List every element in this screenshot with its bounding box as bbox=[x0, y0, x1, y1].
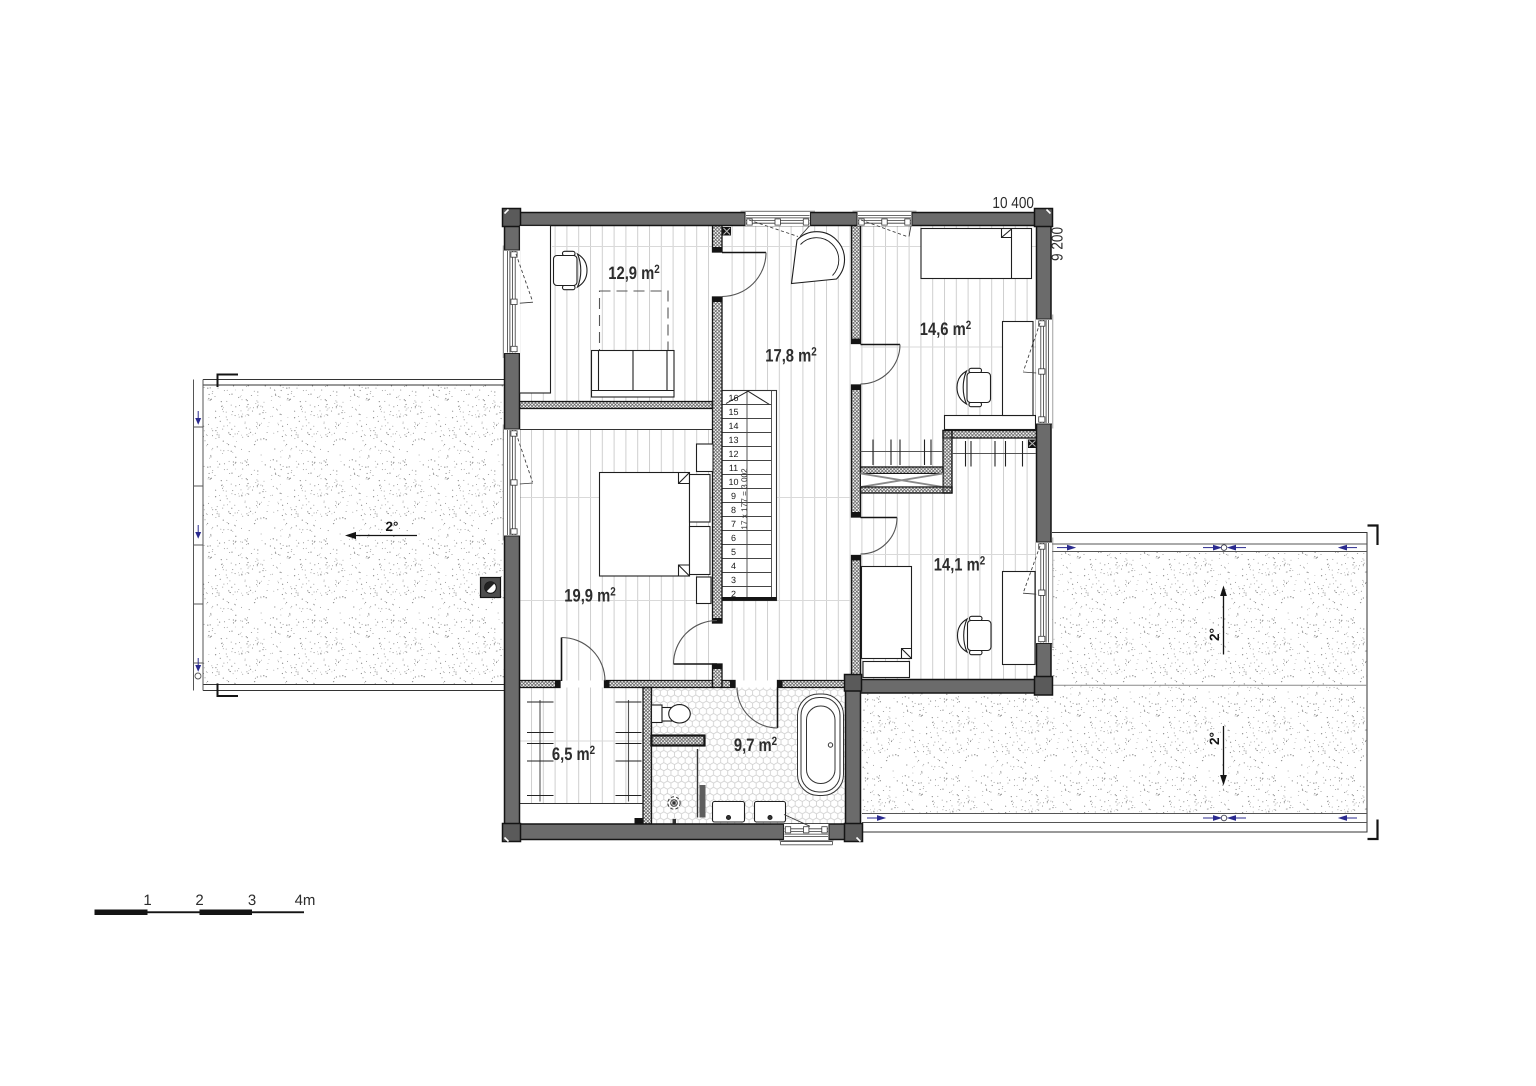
svg-text:9 200: 9 200 bbox=[1050, 227, 1067, 261]
svg-text:3: 3 bbox=[248, 892, 256, 909]
svg-text:12,9 m2: 12,9 m2 bbox=[608, 262, 660, 283]
svg-text:13: 13 bbox=[728, 435, 738, 445]
svg-text:12: 12 bbox=[728, 449, 738, 459]
svg-text:14,1 m2: 14,1 m2 bbox=[934, 554, 986, 575]
svg-text:17,8 m2: 17,8 m2 bbox=[765, 345, 817, 366]
svg-text:14: 14 bbox=[728, 421, 738, 431]
svg-text:6: 6 bbox=[731, 533, 736, 543]
svg-text:8: 8 bbox=[731, 505, 736, 515]
svg-text:4m: 4m bbox=[295, 892, 316, 909]
svg-text:11: 11 bbox=[729, 463, 738, 473]
svg-text:4: 4 bbox=[731, 561, 736, 571]
svg-text:10: 10 bbox=[728, 477, 738, 487]
svg-text:15: 15 bbox=[728, 407, 738, 417]
svg-text:2°: 2° bbox=[386, 519, 399, 534]
svg-text:2: 2 bbox=[195, 892, 203, 909]
svg-text:16: 16 bbox=[728, 393, 738, 403]
svg-text:19,9 m2: 19,9 m2 bbox=[564, 585, 616, 606]
svg-text:14,6 m2: 14,6 m2 bbox=[920, 318, 972, 339]
svg-text:5: 5 bbox=[731, 547, 736, 557]
svg-text:1: 1 bbox=[143, 892, 151, 909]
svg-text:6,5 m2: 6,5 m2 bbox=[552, 743, 595, 764]
svg-text:2°: 2° bbox=[1207, 732, 1222, 745]
svg-text:9,7 m2: 9,7 m2 bbox=[734, 734, 777, 755]
svg-text:9: 9 bbox=[731, 491, 736, 501]
svg-text:17 x 177 = 3 002: 17 x 177 = 3 002 bbox=[740, 468, 749, 530]
svg-text:2°: 2° bbox=[1207, 628, 1222, 641]
svg-text:3: 3 bbox=[731, 575, 736, 585]
svg-text:2: 2 bbox=[731, 589, 736, 599]
svg-text:7: 7 bbox=[731, 519, 736, 529]
svg-text:10 400: 10 400 bbox=[992, 195, 1034, 212]
